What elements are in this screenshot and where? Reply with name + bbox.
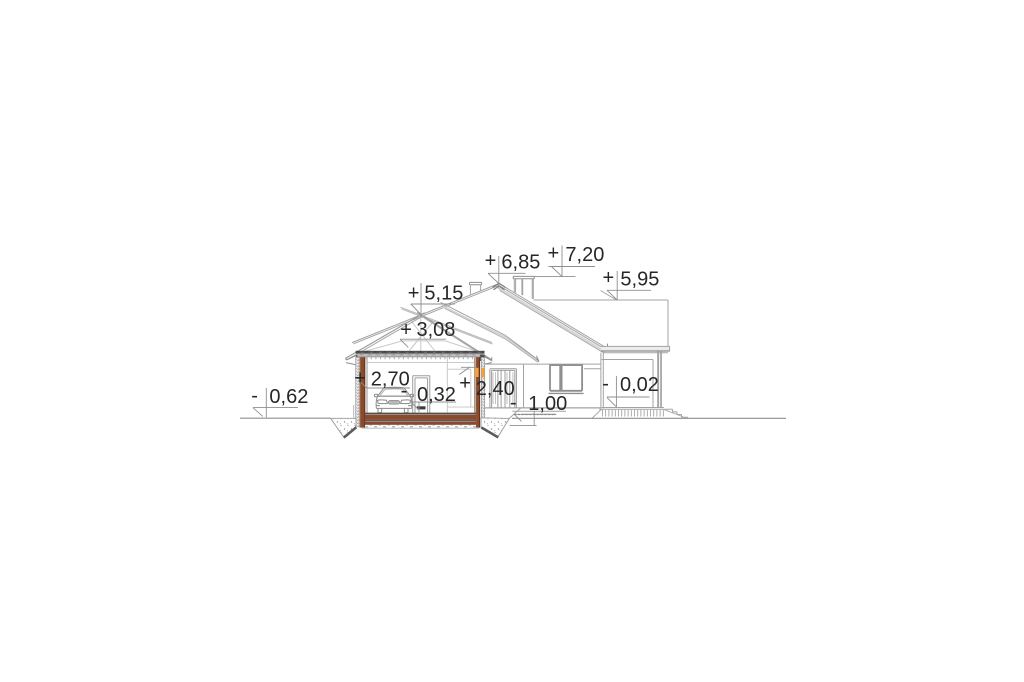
svg-text:7,20: 7,20 (565, 244, 604, 266)
svg-text:6,85: 6,85 (501, 252, 540, 274)
svg-text:5,95: 5,95 (620, 269, 659, 291)
svg-text:-: - (510, 392, 517, 414)
svg-text:-: - (401, 380, 408, 402)
svg-text:0,32: 0,32 (417, 384, 456, 406)
svg-text:+: + (408, 282, 420, 304)
svg-text:+: + (459, 373, 471, 395)
svg-text:2,40: 2,40 (476, 378, 515, 400)
svg-text:+: + (603, 267, 615, 289)
svg-text:3,08: 3,08 (417, 319, 456, 341)
svg-text:-: - (251, 385, 258, 407)
svg-text:1,00: 1,00 (528, 393, 567, 415)
svg-text:0,02: 0,02 (620, 374, 659, 396)
svg-text:5,15: 5,15 (424, 283, 463, 305)
svg-text:+: + (354, 367, 366, 389)
svg-text:+: + (485, 250, 497, 272)
svg-text:+: + (548, 242, 560, 264)
svg-text:0,62: 0,62 (269, 386, 308, 408)
svg-text:+: + (400, 319, 412, 341)
svg-text:-: - (602, 373, 609, 395)
